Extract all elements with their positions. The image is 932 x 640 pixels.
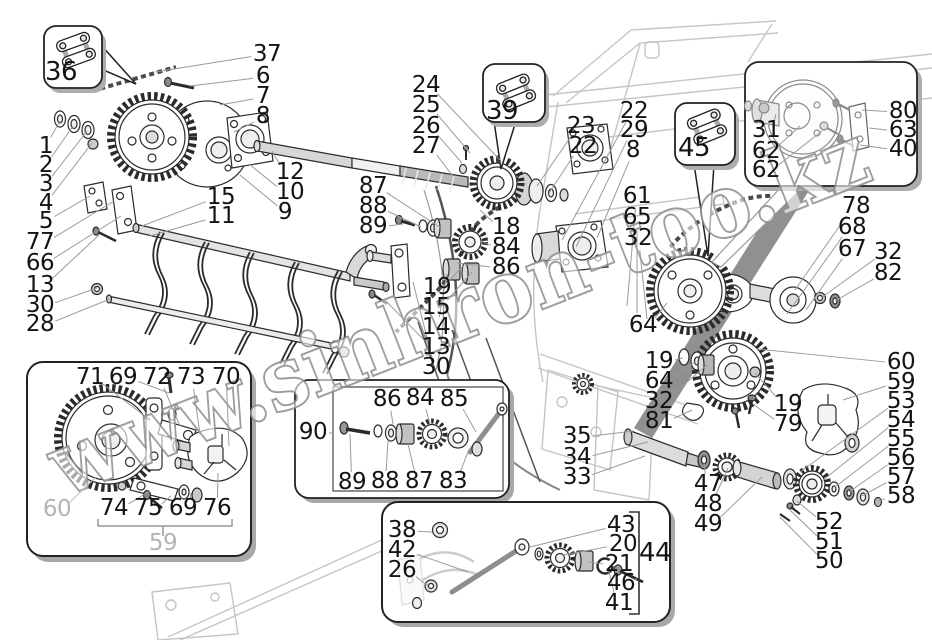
leader-line-50 — [780, 517, 817, 555]
leader-line-9 — [240, 175, 277, 206]
part-label-62: 62 — [752, 159, 780, 182]
part-label-22: 22 — [569, 135, 597, 158]
leader-line-3 — [52, 131, 87, 176]
part-label-89: 89 — [338, 471, 366, 494]
part-label-8: 8 — [626, 139, 640, 162]
leader-line-49 — [720, 477, 762, 518]
part-label-74: 74 — [100, 497, 128, 520]
leader-line-28 — [55, 299, 110, 321]
leader-line-32 — [672, 365, 707, 395]
leader-line-55 — [835, 446, 888, 487]
leader-line-84 — [481, 241, 491, 245]
part-label-45: 45 — [678, 135, 710, 161]
part-label-71: 71 — [76, 366, 104, 389]
part-label-36: 36 — [45, 59, 77, 85]
part-label-79: 79 — [774, 413, 802, 436]
leader-line-43 — [530, 528, 605, 547]
leader-line-51 — [789, 509, 817, 536]
leader-line-84 — [426, 409, 430, 424]
leader-line-7 — [220, 99, 253, 105]
leader-line-89 — [389, 224, 403, 226]
leader-line-88 — [386, 440, 388, 471]
leader-line-60 — [69, 477, 96, 503]
leader-line-22 — [549, 156, 573, 193]
leader-line-66 — [54, 216, 121, 258]
leader-line-62 — [779, 131, 822, 165]
leader-line-60 — [757, 349, 885, 362]
part-label-84: 84 — [406, 387, 434, 410]
parts-diagram: www.sinhron-too.kz 363767812345776613302… — [0, 0, 932, 640]
part-label-50: 50 — [815, 550, 843, 573]
leader-line-38 — [418, 531, 432, 532]
part-label-44: 44 — [639, 540, 671, 566]
leader-line-10 — [249, 164, 277, 187]
leader-line-73 — [194, 389, 200, 434]
leader-line-88 — [388, 211, 421, 227]
leader-line-53 — [800, 408, 888, 472]
leader-line-86 — [457, 263, 490, 267]
part-label-9: 9 — [278, 201, 292, 224]
part-label-85: 85 — [440, 388, 468, 411]
leader-line-57 — [862, 483, 886, 496]
part-label-33: 33 — [563, 466, 591, 489]
part-label-90: 90 — [299, 421, 327, 444]
part-label-59: 59 — [149, 532, 177, 555]
leader-line-87 — [387, 193, 441, 228]
part-label-64: 64 — [629, 314, 657, 337]
part-label-8: 8 — [256, 105, 270, 128]
part-label-39: 39 — [486, 98, 518, 124]
leader-line-6 — [190, 78, 253, 86]
leader-line-85 — [463, 409, 476, 432]
part-label-87: 87 — [405, 470, 433, 493]
leader-line-68 — [787, 237, 842, 314]
leader-line-26 — [416, 576, 428, 586]
part-label-69: 69 — [109, 366, 137, 389]
part-label-30: 30 — [422, 356, 450, 379]
leader-line-64 — [673, 362, 695, 377]
leader-line-80 — [862, 110, 887, 111]
leader-line-11 — [150, 220, 206, 236]
leader-line-79 — [753, 404, 774, 419]
part-label-26: 26 — [388, 559, 416, 582]
part-label-41: 41 — [605, 592, 633, 615]
leader-line-40 — [860, 145, 887, 149]
part-label-86: 86 — [373, 388, 401, 411]
part-label-70: 70 — [212, 366, 240, 389]
part-label-58: 58 — [887, 485, 915, 508]
part-label-60: 60 — [43, 498, 71, 521]
leader-line-52 — [797, 501, 816, 517]
leader-line-59 — [843, 386, 886, 400]
part-label-88: 88 — [371, 470, 399, 493]
leader-line-56 — [849, 465, 887, 492]
leader-line-19 — [675, 358, 683, 360]
part-label-49: 49 — [694, 513, 722, 536]
leader-line-32 — [821, 259, 875, 298]
leader-line-13 — [52, 234, 100, 279]
part-label-69: 69 — [169, 497, 197, 520]
part-label-81: 81 — [645, 410, 673, 433]
part-label-86: 86 — [492, 256, 520, 279]
leader-line-19 — [449, 266, 463, 281]
leader-line-58 — [877, 499, 885, 501]
leader-line-82 — [835, 279, 874, 301]
leader-line-63 — [869, 128, 887, 130]
part-label-75: 75 — [134, 497, 162, 520]
part-label-73: 73 — [177, 366, 205, 389]
leader-line-33 — [592, 456, 645, 475]
part-label-67: 67 — [838, 238, 866, 261]
leader-line-5 — [55, 196, 90, 216]
part-label-72: 72 — [143, 366, 171, 389]
leader-line-30 — [55, 288, 97, 303]
part-label-83: 83 — [439, 470, 467, 493]
leader-lines — [0, 0, 932, 640]
part-label-76: 76 — [203, 497, 231, 520]
part-label-40: 40 — [889, 138, 917, 161]
part-label-28: 28 — [26, 313, 54, 336]
leader-line-42 — [417, 554, 468, 572]
leader-line-81 — [674, 410, 692, 418]
leader-line-8 — [234, 122, 254, 132]
leader-line-23 — [537, 136, 571, 186]
leader-line-20 — [563, 547, 607, 555]
leader-line-77 — [54, 201, 114, 238]
leader-line-72 — [164, 388, 180, 426]
leader-line-35 — [593, 431, 634, 436]
leader-line-25 — [437, 114, 470, 153]
leader-line-62 — [779, 126, 800, 145]
part-label-27: 27 — [412, 135, 440, 158]
part-label-32: 32 — [624, 227, 652, 250]
part-label-82: 82 — [874, 262, 902, 285]
part-label-89: 89 — [359, 215, 387, 238]
leader-line-21 — [588, 562, 603, 564]
leader-line-89 — [350, 434, 351, 472]
leader-line-37 — [155, 57, 251, 72]
leader-line-32 — [640, 250, 647, 319]
leader-line-13 — [385, 300, 424, 340]
leader-line-86 — [391, 411, 393, 424]
part-label-11: 11 — [207, 205, 235, 228]
leader-line-34 — [593, 442, 648, 456]
leader-line-70 — [227, 389, 229, 446]
